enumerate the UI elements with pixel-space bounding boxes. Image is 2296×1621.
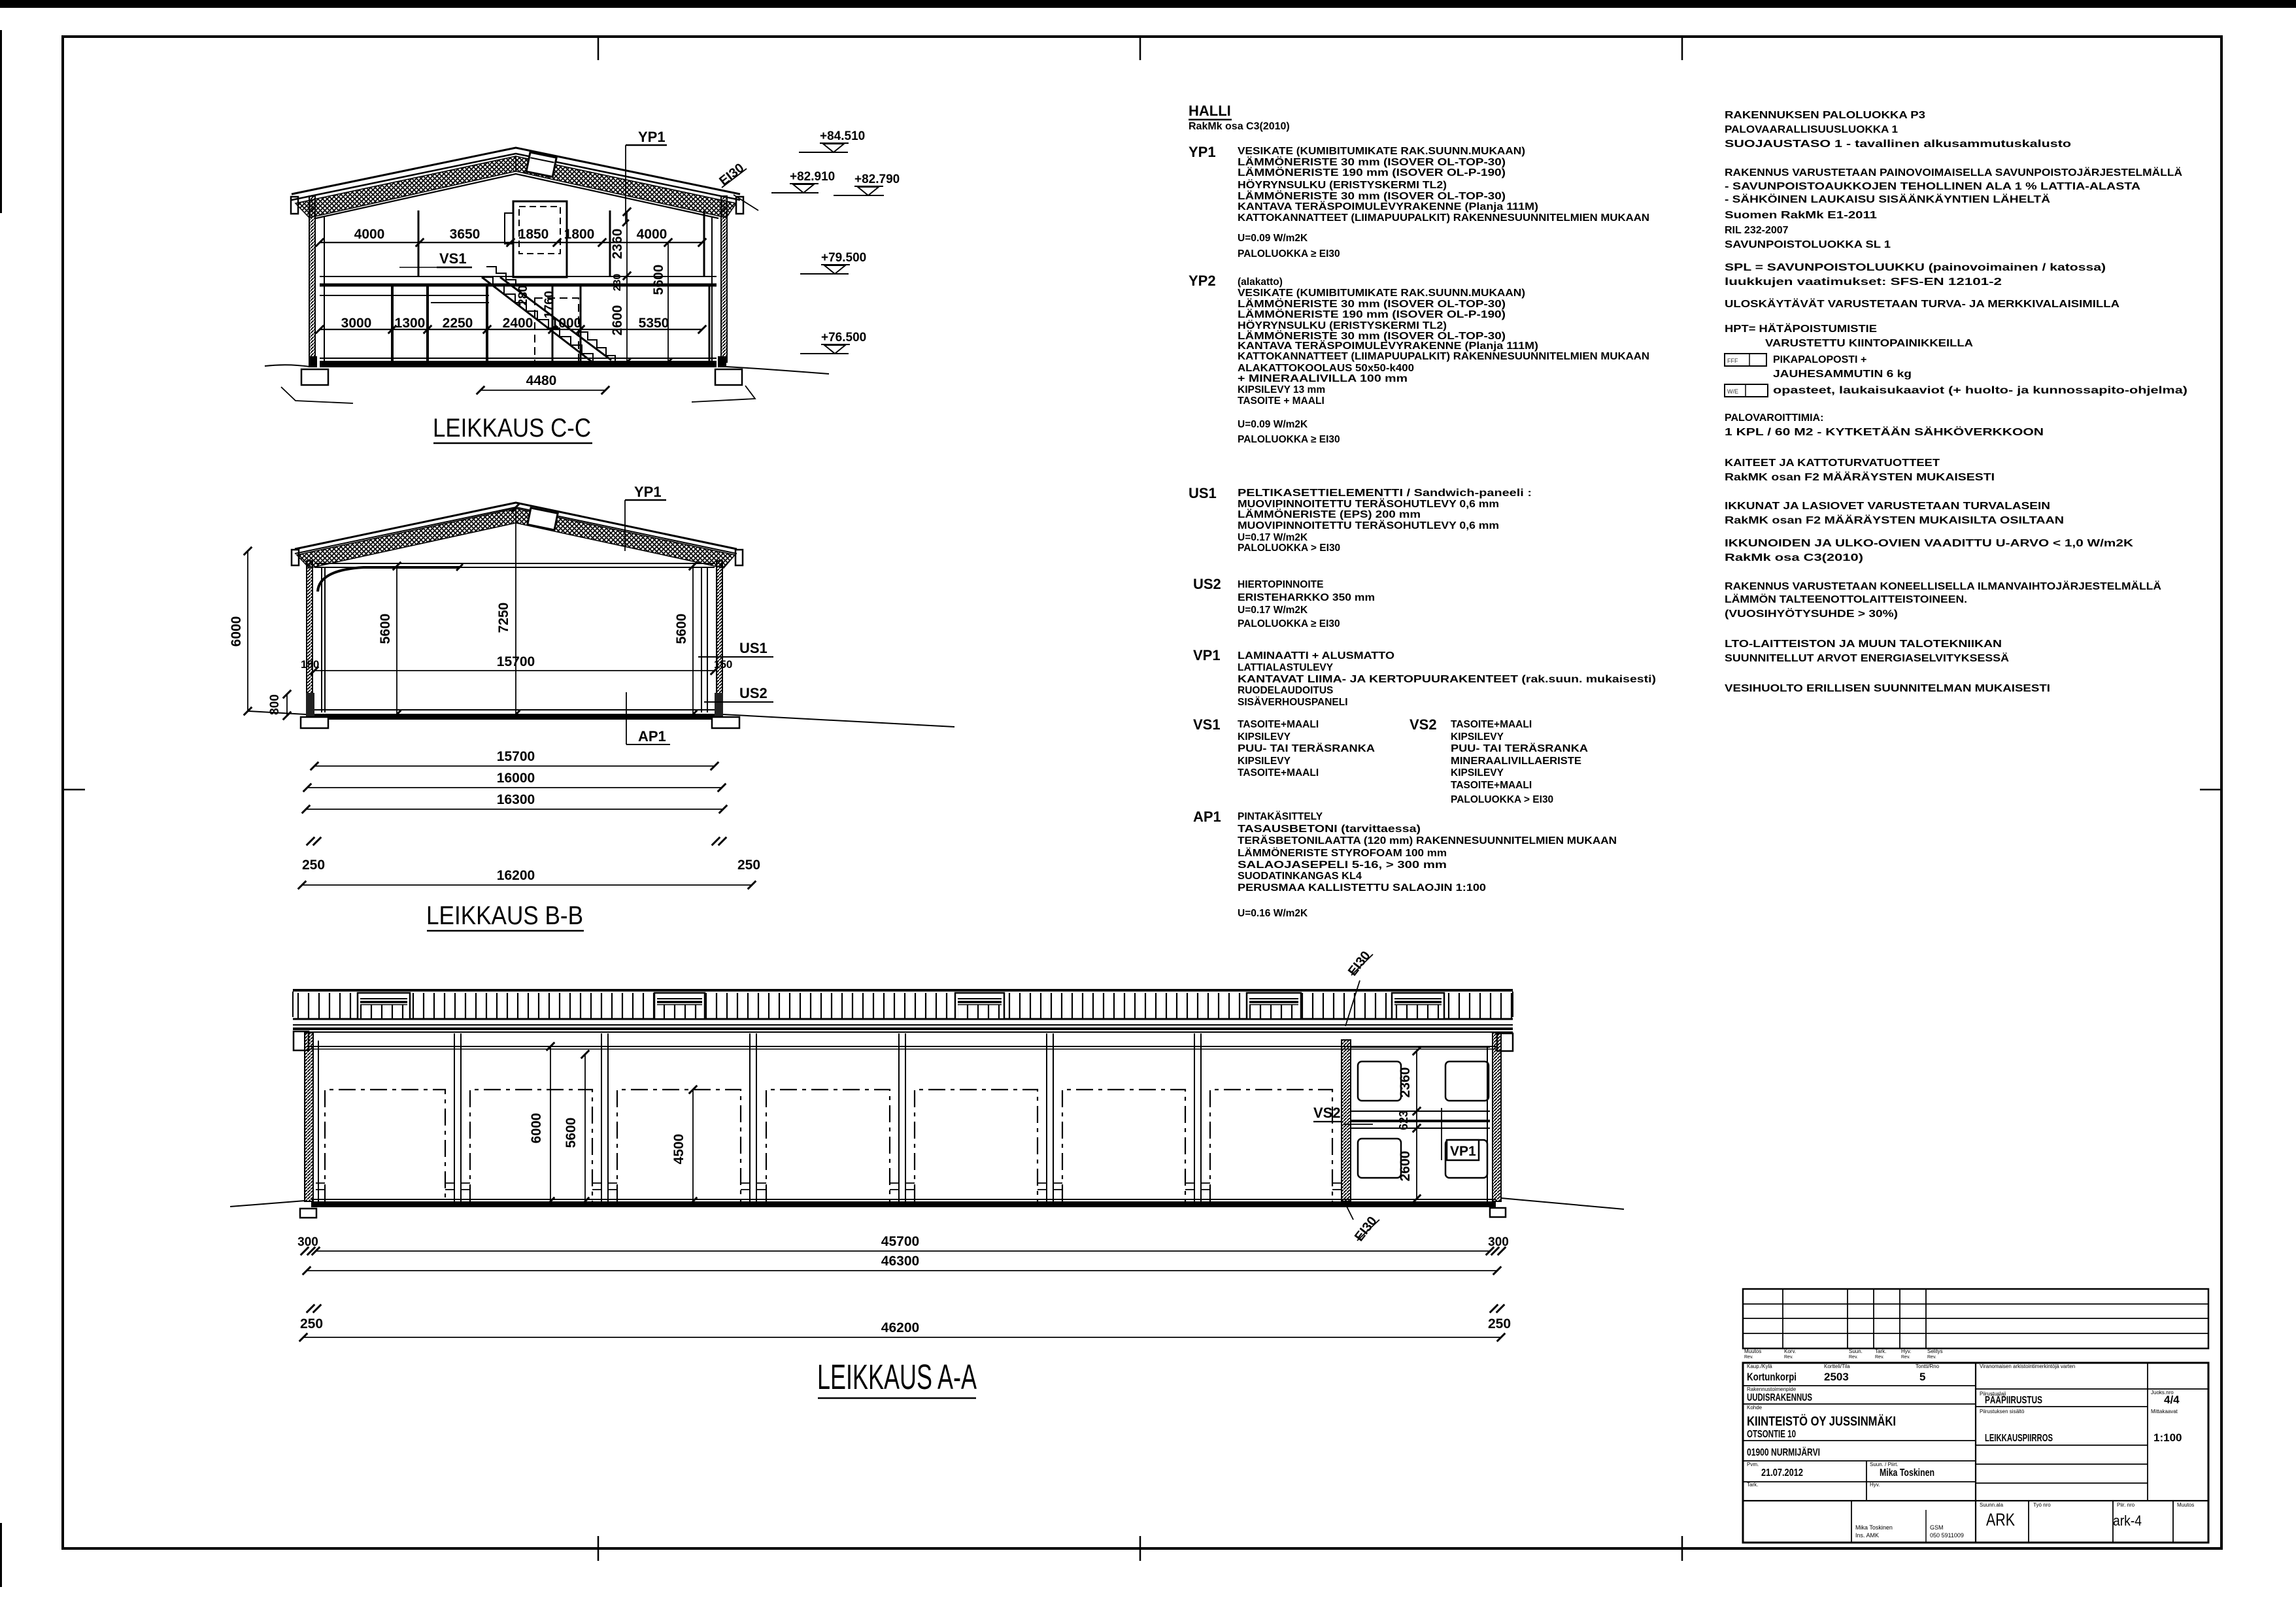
svg-text:Rev.: Rev. — [1875, 1355, 1884, 1360]
svg-text:1760: 1760 — [543, 291, 556, 318]
svg-text:Tontti/Rno: Tontti/Rno — [1916, 1363, 1940, 1369]
svg-text:Mika Toskinen: Mika Toskinen — [1880, 1467, 1934, 1479]
svg-text:Tark.: Tark. — [1747, 1482, 1758, 1488]
svg-text:4000: 4000 — [637, 227, 667, 242]
svg-text:16200: 16200 — [497, 868, 535, 883]
svg-text:RakMk osa C3(2010): RakMk osa C3(2010) — [1189, 121, 1290, 132]
svg-text:AP1: AP1 — [1193, 809, 1221, 825]
svg-text:TASAUSBETONI (tarvittaessa): TASAUSBETONI (tarvittaessa) — [1238, 824, 1421, 835]
svg-text:IKKUNAT JA LASIOVET VARUSTE: IKKUNAT JA LASIOVET VARUSTETAAN TURVALAS… — [1725, 501, 2050, 512]
svg-text:YP1: YP1 — [634, 484, 662, 500]
svg-text:250: 250 — [300, 1316, 323, 1331]
svg-text:Hyv.: Hyv. — [1870, 1482, 1880, 1488]
svg-text:5600: 5600 — [378, 614, 393, 644]
svg-text:YP1: YP1 — [638, 129, 666, 145]
svg-text:LATTIALASTULEVY: LATTIALASTULEVY — [1238, 662, 1334, 673]
svg-text:2400: 2400 — [503, 316, 533, 331]
svg-text:HÖYRYNSULKU (ERISTYSKERMI TL: HÖYRYNSULKU (ERISTYSKERMI TL2) — [1238, 180, 1447, 191]
svg-text:+ MINERAALIVILLA 100 mm: + MINERAALIVILLA 100 mm — [1238, 373, 1408, 384]
svg-text:LÄMMÖNERISTE STYROFOAM 100: LÄMMÖNERISTE STYROFOAM 100 mm — [1238, 848, 1447, 859]
svg-text:Korv.: Korv. — [1784, 1348, 1796, 1354]
svg-text:VESIHUOLTO ERILLISEN SUUNNIT: VESIHUOLTO ERILLISEN SUUNNITELMAN MUKAIS… — [1725, 683, 2050, 694]
svg-text:VS2: VS2 — [1410, 716, 1437, 733]
svg-text:HALLI: HALLI — [1189, 103, 1231, 119]
svg-text:Rev.: Rev. — [1901, 1355, 1910, 1360]
svg-text:3650: 3650 — [450, 227, 481, 242]
svg-text:Rev.: Rev. — [1744, 1355, 1753, 1360]
svg-text:2360: 2360 — [1398, 1067, 1413, 1098]
svg-text:Kohde: Kohde — [1747, 1405, 1763, 1411]
svg-text:Pvm.: Pvm. — [1747, 1462, 1759, 1467]
svg-text:MUOVIPINNOITETTU TERÄSOHUTLEV: MUOVIPINNOITETTU TERÄSOHUTLEVY 0,6 mm — [1238, 499, 1499, 510]
svg-text:Hyv.: Hyv. — [1901, 1348, 1911, 1354]
svg-text:Rev.: Rev. — [1927, 1355, 1936, 1360]
svg-text:- SAVUNPOISTOAUKKOJEN TEHOLL: - SAVUNPOISTOAUKKOJEN TEHOLLINEN ALA 1 %… — [1725, 181, 2141, 192]
svg-text:VESIKATE (KUMIBITUMIKATE RAK: VESIKATE (KUMIBITUMIKATE RAK.SUUNN.MUKAA… — [1238, 288, 1525, 299]
svg-text:PALOLUOKKA ≥ EI30: PALOLUOKKA ≥ EI30 — [1238, 618, 1340, 629]
svg-text:U=0.17 W/m2K: U=0.17 W/m2K — [1238, 532, 1308, 543]
svg-text:YP2: YP2 — [1189, 273, 1216, 289]
svg-text:050 5911009: 050 5911009 — [1930, 1532, 1964, 1539]
svg-text:KIPSILEVY: KIPSILEVY — [1451, 767, 1504, 778]
svg-text:LEIKKAUS C-C: LEIKKAUS C-C — [433, 414, 591, 443]
svg-text:KIPSILEVY: KIPSILEVY — [1451, 731, 1504, 743]
svg-text:TASOITE + MAALI: TASOITE + MAALI — [1238, 395, 1325, 407]
svg-text:4/4: 4/4 — [2164, 1394, 2180, 1406]
svg-text:TASOITE+MAALI: TASOITE+MAALI — [1238, 767, 1319, 778]
svg-text:PIKAPALOPOSTI +: PIKAPALOPOSTI + — [1773, 354, 1866, 365]
svg-text:PERUSMAA KALLISTETTU SALAOJI: PERUSMAA KALLISTETTU SALAOJIN 1:100 — [1238, 882, 1486, 894]
svg-text:KANTAVA TERÄSPOIMULEVYRAKENNE: KANTAVA TERÄSPOIMULEVYRAKENNE (Planja 11… — [1238, 341, 1538, 352]
svg-text:LÄMMÖNERISTE 190 mm (ISOVER: LÄMMÖNERISTE 190 mm (ISOVER OL-P-190) — [1238, 309, 1506, 320]
svg-text:MUOVIPINNOITETTU TERÄSOHUTLEV: MUOVIPINNOITETTU TERÄSOHUTLEVY 0,6 mm — [1238, 520, 1499, 531]
svg-text:FFF: FFF — [1727, 358, 1738, 364]
svg-text:3000: 3000 — [341, 316, 372, 331]
svg-text:150: 150 — [301, 658, 319, 671]
svg-text:VS2: VS2 — [1313, 1105, 1341, 1121]
svg-text:W/E: W/E — [1727, 388, 1738, 395]
svg-text:Mittakaavat: Mittakaavat — [2151, 1409, 2178, 1414]
svg-text:HPT= HÄTÄPOISTUMISTIE: HPT= HÄTÄPOISTUMISTIE — [1725, 323, 1877, 335]
svg-text:TASOITE+MAALI: TASOITE+MAALI — [1451, 719, 1532, 730]
svg-text:2600: 2600 — [610, 305, 625, 336]
svg-text:1850: 1850 — [518, 227, 549, 242]
svg-text:RAKENNUS VARUSTETAAN PAINOVO: RAKENNUS VARUSTETAAN PAINOVOIMAISELLA SA… — [1725, 167, 2182, 178]
svg-text:5350: 5350 — [639, 316, 669, 331]
svg-text:HIERTOPINNOITE: HIERTOPINNOITE — [1238, 579, 1323, 590]
svg-text:opasteet, laukaisukaaviot (+: opasteet, laukaisukaaviot (+ huolto- ja … — [1773, 385, 2187, 396]
svg-text:Muutos: Muutos — [1744, 1348, 1761, 1354]
svg-text:luukkujen vaatimukset: SFS-E: luukkujen vaatimukset: SFS-EN 12101-2 — [1725, 276, 2002, 288]
svg-text:230: 230 — [612, 274, 623, 292]
svg-text:2250: 2250 — [443, 316, 473, 331]
svg-text:Muutos: Muutos — [2177, 1502, 2194, 1508]
svg-text:+82.910: +82.910 — [790, 170, 835, 184]
svg-text:LÄMMÖNERISTE (EPS) 200 mm: LÄMMÖNERISTE (EPS) 200 mm — [1238, 509, 1421, 520]
svg-text:Rakennustoimenpide: Rakennustoimenpide — [1747, 1386, 1797, 1392]
svg-text:+84.510: +84.510 — [820, 129, 865, 143]
svg-text:4480: 4480 — [526, 373, 557, 388]
svg-text:Kaup./Kylä: Kaup./Kylä — [1747, 1363, 1772, 1369]
svg-text:Viranomaisen arkistointimerki: Viranomaisen arkistointimerkintöjä varte… — [1980, 1363, 2075, 1369]
svg-text:KIINTEISTÖ OY JUSSINMÄKI: KIINTEISTÖ OY JUSSINMÄKI — [1747, 1414, 1896, 1429]
svg-text:ALAKATTOKOOLAUS 50x50-k400: ALAKATTOKOOLAUS 50x50-k400 — [1238, 363, 1414, 374]
svg-text:VARUSTETTU KIINTOPAINIKKEILLA: VARUSTETTU KIINTOPAINIKKEILLA — [1765, 338, 1974, 349]
svg-text:PALOVAROITTIMIA:: PALOVAROITTIMIA: — [1725, 412, 1823, 424]
svg-text:LÄMMÖNERISTE 30 mm (ISOVER: LÄMMÖNERISTE 30 mm (ISOVER OL-TOP-30) — [1238, 191, 1506, 202]
svg-text:+76.500: +76.500 — [821, 331, 866, 344]
svg-text:Kortteli/Tila: Kortteli/Tila — [1824, 1363, 1850, 1369]
svg-text:7250: 7250 — [496, 603, 511, 633]
svg-text:HÖYRYNSULKU (ERISTYSKERMI TL: HÖYRYNSULKU (ERISTYSKERMI TL2) — [1238, 320, 1447, 331]
svg-text:1300: 1300 — [395, 316, 426, 331]
svg-text:250: 250 — [737, 858, 760, 873]
svg-text:RUODELAUDOITUS: RUODELAUDOITUS — [1238, 685, 1333, 696]
svg-text:+82.790: +82.790 — [854, 173, 900, 186]
svg-text:MINERAALIVILLAERISTE: MINERAALIVILLAERISTE — [1451, 756, 1581, 767]
svg-text:Mika Toskinen: Mika Toskinen — [1855, 1524, 1893, 1531]
svg-text:Suunn.ala: Suunn.ala — [1980, 1502, 2004, 1508]
svg-text:46300: 46300 — [881, 1254, 919, 1269]
svg-text:GSM: GSM — [1930, 1524, 1944, 1531]
svg-text:PALOLUOKKA ≥ EI30: PALOLUOKKA ≥ EI30 — [1238, 248, 1340, 259]
svg-text:LEIKKAUS A-A: LEIKKAUS A-A — [817, 1358, 977, 1397]
svg-text:LÄMMÖNERISTE 190 mm (ISOVER: LÄMMÖNERISTE 190 mm (ISOVER OL-P-190) — [1238, 167, 1506, 178]
svg-text:KIPSILEVY: KIPSILEVY — [1238, 731, 1291, 743]
svg-text:Suun. / Piirt.: Suun. / Piirt. — [1870, 1462, 1899, 1467]
svg-text:LÄMMÖNERISTE 30 mm (ISOVER: LÄMMÖNERISTE 30 mm (ISOVER OL-TOP-30) — [1238, 299, 1506, 310]
svg-text:Piir. nro: Piir. nro — [2117, 1502, 2135, 1508]
svg-text:1:100: 1:100 — [2153, 1431, 2182, 1444]
svg-text:(alakatto): (alakatto) — [1238, 276, 1283, 288]
svg-text:6000: 6000 — [529, 1113, 544, 1144]
svg-text:Kortunkorpi: Kortunkorpi — [1747, 1371, 1797, 1383]
svg-text:ULOSKÄYTÄVÄT VARUSTETAAN TUR: ULOSKÄYTÄVÄT VARUSTETAAN TURVA- JA MERKK… — [1725, 298, 2120, 310]
svg-text:SALAOJASEPELI 5-16, > 300: SALAOJASEPELI 5-16, > 300 mm — [1238, 860, 1447, 871]
svg-text:800: 800 — [268, 694, 282, 715]
svg-text:LAMINAATTI + ALUSMATTO: LAMINAATTI + ALUSMATTO — [1238, 650, 1394, 661]
svg-text:2503: 2503 — [1824, 1371, 1849, 1383]
svg-text:Piirustuksen sisältö: Piirustuksen sisältö — [1980, 1409, 2025, 1414]
svg-text:Työ nro: Työ nro — [2033, 1502, 2051, 1508]
svg-text:SUODATINKANGAS KL4: SUODATINKANGAS KL4 — [1238, 871, 1362, 882]
svg-text:ark-4: ark-4 — [2113, 1512, 2142, 1529]
svg-text:5: 5 — [1919, 1371, 1925, 1383]
svg-text:SAVUNPOISTOLUOKKA SL 1: SAVUNPOISTOLUOKKA SL 1 — [1725, 239, 1891, 250]
svg-text:VS1: VS1 — [1193, 716, 1221, 733]
svg-text:Rev.: Rev. — [1849, 1355, 1858, 1360]
svg-text:RAKENNUKSEN PALOLUOKKA P3: RAKENNUKSEN PALOLUOKKA P3 — [1725, 110, 1925, 121]
svg-text:15700: 15700 — [497, 749, 535, 764]
svg-text:TASOITE+MAALI: TASOITE+MAALI — [1238, 719, 1319, 730]
svg-text:PUU- TAI TERÄSRANKA: PUU- TAI TERÄSRANKA — [1238, 743, 1375, 754]
svg-text:SUUNNITELLUT ARVOT ENERGIASE: SUUNNITELLUT ARVOT ENERGIASELVITYKSESSÄ — [1725, 652, 2009, 664]
svg-text:623: 623 — [1397, 1111, 1410, 1130]
svg-text:RIL 232-2007: RIL 232-2007 — [1725, 225, 1789, 236]
svg-text:LÄMMÖNERISTE 30 mm (ISOVER: LÄMMÖNERISTE 30 mm (ISOVER OL-TOP-30) — [1238, 157, 1506, 168]
svg-text:KANTAVA TERÄSPOIMULEVYRAKENNE: KANTAVA TERÄSPOIMULEVYRAKENNE (Planja 11… — [1238, 201, 1538, 212]
svg-text:45700: 45700 — [881, 1234, 919, 1249]
svg-text:LTO-LAITTEISTON JA MUUN TAL: LTO-LAITTEISTON JA MUUN TALOTEKNIIKAN — [1725, 639, 2002, 650]
svg-text:15700: 15700 — [497, 654, 535, 669]
svg-text:ERISTEHARKKO 350 mm: ERISTEHARKKO 350 mm — [1238, 592, 1375, 603]
svg-text:PALOLUOKKA > EI30: PALOLUOKKA > EI30 — [1451, 794, 1553, 805]
svg-text:ARK: ARK — [1986, 1510, 2015, 1529]
svg-text:5600: 5600 — [564, 1118, 579, 1148]
svg-text:KAITEET JA KATTOTURVATUOTTEE: KAITEET JA KATTOTURVATUOTTEET — [1725, 458, 1940, 469]
svg-text:+79.500: +79.500 — [821, 251, 866, 265]
svg-text:- SÄHKÖINEN LAUKAISU SISÄÄN: - SÄHKÖINEN LAUKAISU SISÄÄNKÄYNTIEN LÄHE… — [1725, 193, 2051, 205]
svg-text:Suomen RakMk E1-2011: Suomen RakMk E1-2011 — [1725, 210, 1877, 221]
svg-text:6000: 6000 — [229, 616, 244, 647]
svg-text:SISÄVERHOUSPANELI: SISÄVERHOUSPANELI — [1238, 697, 1348, 708]
svg-text:U=0.09 W/m2K: U=0.09 W/m2K — [1238, 419, 1308, 430]
svg-text:SPL = SAVUNPOISTOLUUKKU (pa: SPL = SAVUNPOISTOLUUKKU (painovoimainen … — [1725, 262, 2106, 273]
svg-text:RakMk osa C3(2010): RakMk osa C3(2010) — [1725, 552, 1863, 563]
svg-text:LEIKKAUSPIIRROS: LEIKKAUSPIIRROS — [1985, 1433, 2053, 1444]
svg-text:1 KPL / 60 M2 - KYTKETÄÄ: 1 KPL / 60 M2 - KYTKETÄÄN SÄHKÖVERKKOON — [1725, 426, 2044, 438]
svg-text:RAKENNUS VARUSTETAAN KONEELL: RAKENNUS VARUSTETAAN KONEELLISELLA ILMAN… — [1725, 580, 2161, 592]
svg-text:250: 250 — [1488, 1316, 1511, 1331]
svg-text:21.07.2012: 21.07.2012 — [1761, 1467, 1803, 1479]
svg-text:2360: 2360 — [610, 229, 625, 259]
svg-text:PALOLUOKKA ≥ EI30: PALOLUOKKA ≥ EI30 — [1238, 434, 1340, 445]
svg-text:JAUHESAMMUTIN 6 kg: JAUHESAMMUTIN 6 kg — [1773, 369, 1912, 380]
svg-text:US2: US2 — [1193, 576, 1221, 592]
svg-text:5600: 5600 — [651, 265, 666, 295]
svg-text:Tark.: Tark. — [1875, 1348, 1886, 1354]
svg-text:U=0.16 W/m2K: U=0.16 W/m2K — [1238, 908, 1308, 919]
svg-text:46200: 46200 — [881, 1320, 919, 1335]
svg-text:VS1: VS1 — [439, 250, 467, 267]
svg-text:US2: US2 — [739, 685, 768, 701]
svg-text:VP1: VP1 — [1193, 647, 1221, 663]
svg-text:PALOLUOKKA > EI30: PALOLUOKKA > EI30 — [1238, 543, 1340, 554]
svg-text:IKKUNOIDEN JA ULKO-OVIEN VA: IKKUNOIDEN JA ULKO-OVIEN VAADITTU U-ARVO… — [1725, 538, 2134, 549]
svg-text:16000: 16000 — [497, 771, 535, 786]
svg-text:VESIKATE (KUMIBITUMIKATE RAK: VESIKATE (KUMIBITUMIKATE RAK.SUUNN.MUKAA… — [1238, 146, 1525, 157]
svg-text:U=0.17 W/m2K: U=0.17 W/m2K — [1238, 605, 1308, 616]
svg-text:Rev.: Rev. — [1784, 1355, 1793, 1360]
svg-text:5600: 5600 — [674, 614, 689, 644]
svg-text:KATTOKANNATTEET (LIIMAPUUPALK: KATTOKANNATTEET (LIIMAPUUPALKIT) RAKENNE… — [1238, 351, 1649, 362]
svg-text:16300: 16300 — [497, 792, 535, 807]
svg-text:YP1: YP1 — [1189, 144, 1216, 160]
svg-text:PÄÄPIIRUSTUS: PÄÄPIIRUSTUS — [1985, 1394, 2042, 1406]
svg-text:AP1: AP1 — [638, 728, 666, 744]
svg-text:Ins. AMK: Ins. AMK — [1855, 1532, 1879, 1539]
svg-text:4000: 4000 — [354, 227, 385, 242]
svg-text:KANTAVAT LIIMA- JA KERTOPUU: KANTAVAT LIIMA- JA KERTOPUURAKENTEET (ra… — [1238, 674, 1656, 685]
svg-text:280: 280 — [516, 285, 530, 306]
svg-text:RakMK osan F2 MÄÄRÄYSTEN M: RakMK osan F2 MÄÄRÄYSTEN MUKAISESTI — [1725, 471, 1995, 483]
svg-text:PELTIKASETTIELEMENTTI / Sand: PELTIKASETTIELEMENTTI / Sandwich-paneeli… — [1238, 488, 1532, 499]
svg-text:1800: 1800 — [564, 227, 595, 242]
svg-text:4500: 4500 — [671, 1134, 686, 1165]
svg-text:LEIKKAUS B-B: LEIKKAUS B-B — [426, 901, 583, 930]
svg-text:US1: US1 — [739, 640, 768, 656]
svg-text:VP1: VP1 — [1450, 1144, 1476, 1159]
svg-text:LÄMMÖN TALTEENOTTOLAITTEISTOI: LÄMMÖN TALTEENOTTOLAITTEISTOINEEN. — [1725, 593, 1967, 605]
svg-text:KIPSILEVY 13 mm: KIPSILEVY 13 mm — [1238, 384, 1325, 395]
svg-text:TERÄSBETONILAATTA (120 mm): TERÄSBETONILAATTA (120 mm) RAKENNESUUNNI… — [1238, 835, 1617, 846]
svg-text:2600: 2600 — [1398, 1151, 1413, 1182]
svg-text:OTSONTIE 10: OTSONTIE 10 — [1747, 1429, 1796, 1440]
svg-text:SUOJAUSTASO 1 - tavallinen: SUOJAUSTASO 1 - tavallinen alkusammutusk… — [1725, 139, 2071, 150]
svg-text:U=0.09 W/m2K: U=0.09 W/m2K — [1238, 233, 1308, 244]
svg-text:Selitys: Selitys — [1927, 1348, 1943, 1354]
svg-text:TASOITE+MAALI: TASOITE+MAALI — [1451, 780, 1532, 791]
svg-text:PALOVAARALLISUUSLUOKKA 1: PALOVAARALLISUUSLUOKKA 1 — [1725, 124, 1898, 135]
svg-text:UUDISRAKENNUS: UUDISRAKENNUS — [1747, 1392, 1812, 1403]
svg-text:250: 250 — [302, 858, 325, 873]
svg-text:PINTAKÄSITTELY: PINTAKÄSITTELY — [1238, 811, 1323, 822]
svg-text:PUU- TAI TERÄSRANKA: PUU- TAI TERÄSRANKA — [1451, 743, 1588, 754]
svg-text:(VUOSIHYÖTYSUHDE > 30%): (VUOSIHYÖTYSUHDE > 30%) — [1725, 607, 1898, 620]
svg-text:Suun.: Suun. — [1849, 1348, 1863, 1354]
svg-text:01900 NURMIJÄRVI: 01900 NURMIJÄRVI — [1747, 1446, 1820, 1458]
svg-text:US1: US1 — [1189, 485, 1217, 501]
svg-text:150: 150 — [714, 658, 732, 671]
svg-text:KIPSILEVY: KIPSILEVY — [1238, 756, 1291, 767]
svg-text:KATTOKANNATTEET (LIIMAPUUPALK: KATTOKANNATTEET (LIIMAPUUPALKIT) RAKENNE… — [1238, 212, 1649, 224]
svg-text:RakMK osan F2 MÄÄRÄYSTEN M: RakMK osan F2 MÄÄRÄYSTEN MUKAISILTA OSIL… — [1725, 514, 2064, 526]
